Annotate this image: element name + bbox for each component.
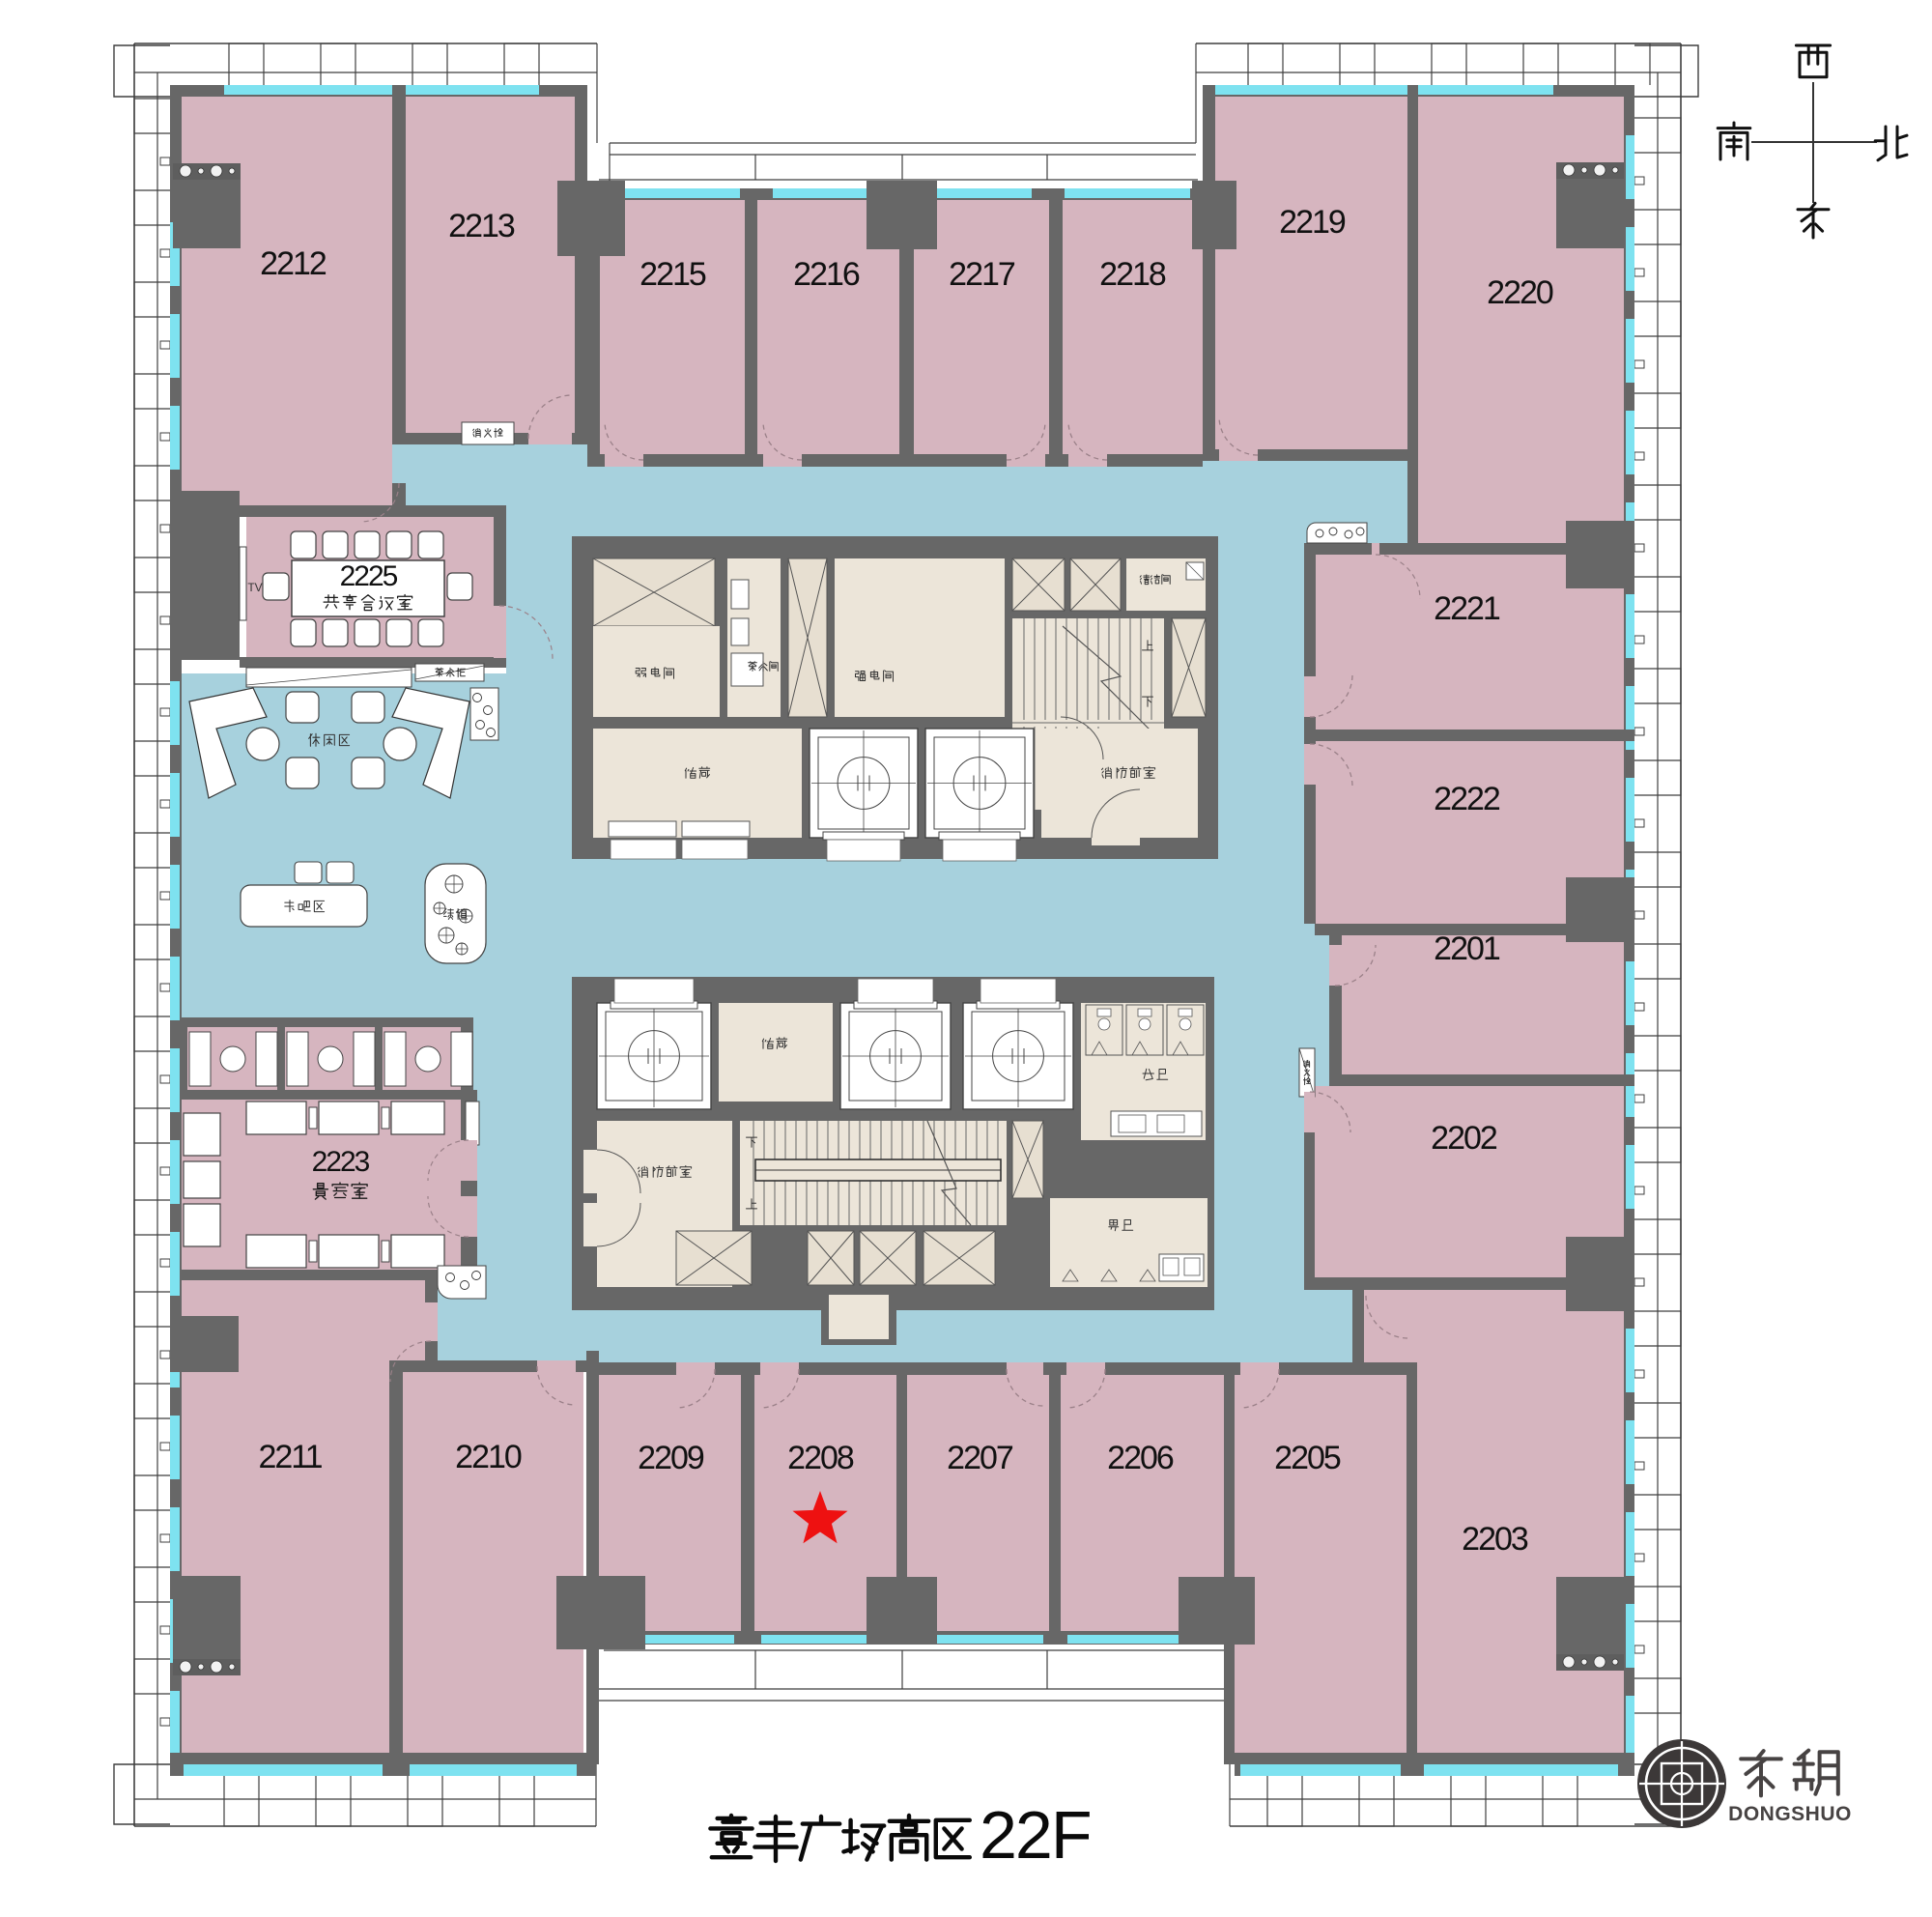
- svg-text:2212: 2212: [260, 245, 327, 282]
- svg-text:2209: 2209: [638, 1440, 704, 1476]
- svg-text:22F: 22F: [980, 1797, 1091, 1873]
- svg-text:2210: 2210: [455, 1439, 522, 1475]
- svg-text:2221: 2221: [1434, 590, 1500, 627]
- svg-text:2219: 2219: [1279, 204, 1346, 241]
- svg-text:DONGSHUO: DONGSHUO: [1728, 1803, 1852, 1825]
- svg-text:2207: 2207: [947, 1440, 1013, 1476]
- svg-text:2215: 2215: [639, 256, 706, 293]
- svg-text:2213: 2213: [448, 208, 515, 244]
- svg-text:2216: 2216: [793, 256, 860, 293]
- svg-text:2208: 2208: [787, 1440, 854, 1476]
- svg-text:2203: 2203: [1462, 1521, 1528, 1558]
- svg-text:2217: 2217: [949, 256, 1015, 293]
- svg-text:2218: 2218: [1099, 256, 1166, 293]
- svg-text:2223: 2223: [312, 1146, 370, 1178]
- svg-text:2201: 2201: [1434, 930, 1500, 967]
- svg-text:2220: 2220: [1487, 274, 1553, 311]
- svg-text:2202: 2202: [1431, 1120, 1497, 1157]
- svg-text:2222: 2222: [1434, 781, 1500, 817]
- svg-text:2205: 2205: [1274, 1440, 1341, 1476]
- svg-text:2225: 2225: [340, 560, 398, 592]
- svg-text:2211: 2211: [258, 1439, 322, 1475]
- svg-text:TV: TV: [247, 581, 262, 594]
- svg-text:2206: 2206: [1107, 1440, 1174, 1476]
